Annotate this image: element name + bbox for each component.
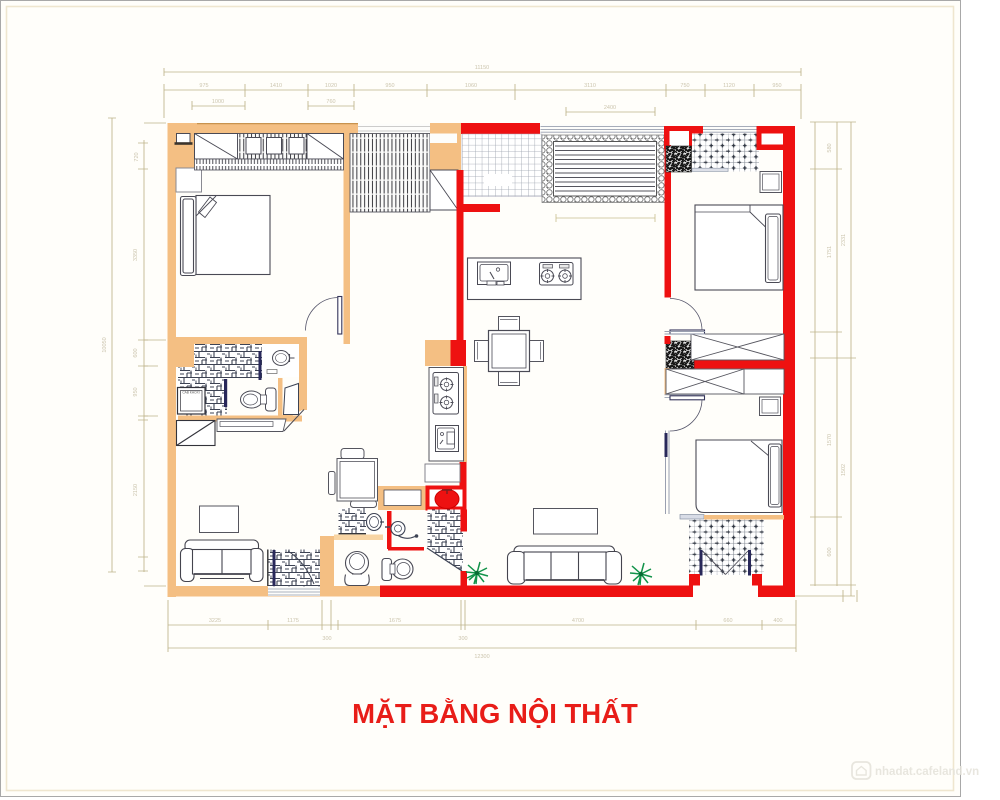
svg-text:660: 660 [723,618,732,624]
svg-text:11150: 11150 [475,65,489,71]
svg-text:4700: 4700 [572,618,584,624]
svg-text:1410: 1410 [270,83,282,89]
svg-text:950: 950 [133,387,139,396]
svg-text:1175: 1175 [287,618,299,624]
svg-text:400: 400 [773,618,782,624]
svg-text:1502: 1502 [841,464,847,476]
svg-text:nhadat.cafeland.vn: nhadat.cafeland.vn [875,766,979,778]
svg-text:1751: 1751 [827,246,833,258]
svg-text:2400: 2400 [604,105,616,111]
svg-text:720: 720 [134,152,140,161]
svg-text:580: 580 [827,143,833,152]
svg-text:950: 950 [772,83,781,89]
svg-text:975: 975 [199,83,208,89]
svg-text:10050: 10050 [102,337,108,352]
svg-text:MẶT BẰNG NỘI THẤT: MẶT BẰNG NỘI THẤT [352,697,638,729]
svg-text:760: 760 [326,99,335,105]
svg-text:3225: 3225 [209,618,221,624]
svg-text:1675: 1675 [389,618,401,624]
svg-text:1570: 1570 [827,434,833,446]
svg-text:600: 600 [133,348,139,357]
svg-text:300: 300 [458,636,467,642]
svg-text:1120: 1120 [723,83,735,89]
svg-text:2331: 2331 [841,234,847,246]
svg-text:950: 950 [385,83,394,89]
svg-text:3110: 3110 [584,83,596,89]
svg-text:1000: 1000 [212,99,224,105]
svg-text:300: 300 [322,636,331,642]
svg-text:12300: 12300 [474,654,489,660]
svg-text:CAB KHOXI: CAB KHOXI [182,391,199,395]
svg-text:600: 600 [827,547,833,556]
svg-text:750: 750 [680,83,689,89]
svg-text:3350: 3350 [133,249,139,261]
svg-text:2150: 2150 [133,484,139,496]
svg-text:1020: 1020 [325,83,337,89]
svg-text:1060: 1060 [465,83,477,89]
